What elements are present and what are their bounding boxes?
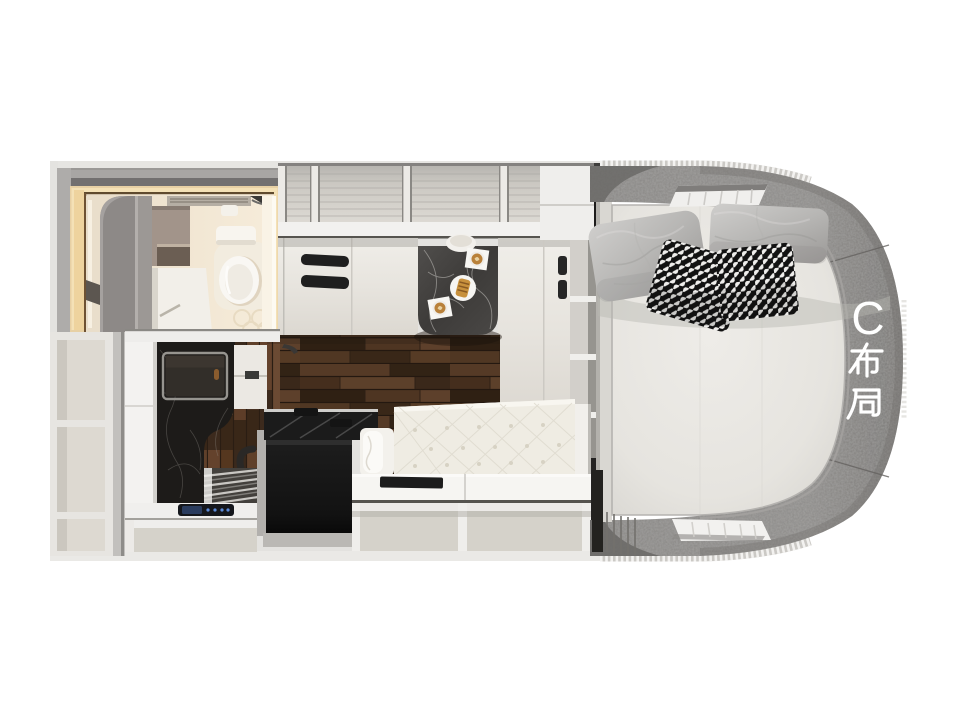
svg-text:C: C — [851, 292, 884, 344]
